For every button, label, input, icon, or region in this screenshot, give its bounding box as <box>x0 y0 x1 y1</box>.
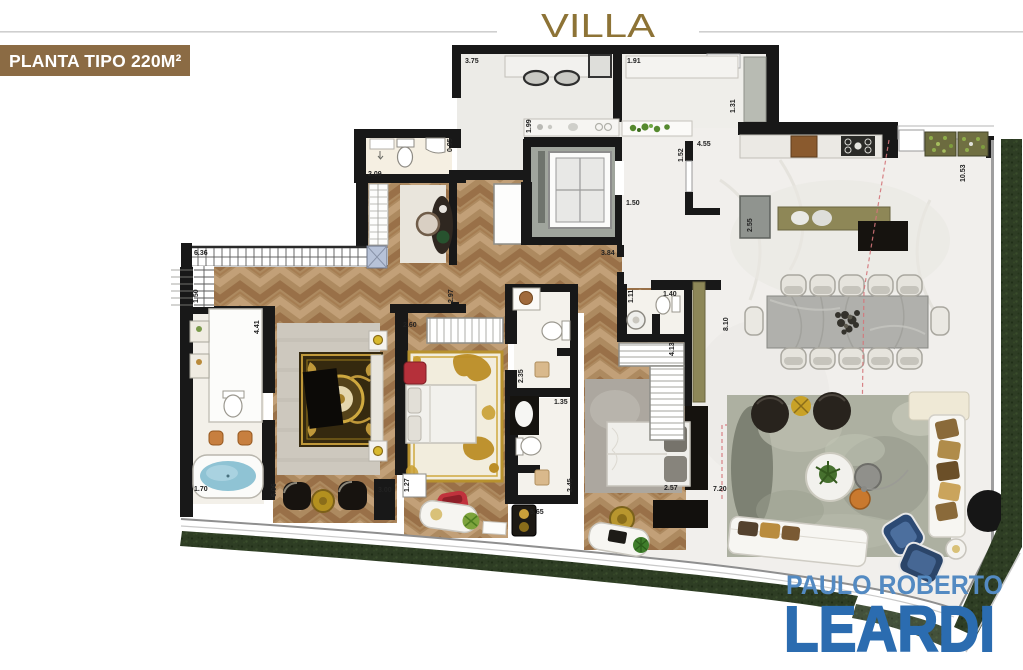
svg-text:10.53: 10.53 <box>960 164 967 182</box>
svg-text:2.57: 2.57 <box>664 485 678 492</box>
svg-text:1.35: 1.35 <box>554 399 568 406</box>
svg-text:5.65: 5.65 <box>530 509 544 516</box>
svg-text:4.41: 4.41 <box>254 320 261 334</box>
svg-text:2.45: 2.45 <box>567 478 574 492</box>
svg-text:2.55: 2.55 <box>747 218 754 232</box>
svg-text:4.13: 4.13 <box>669 342 676 356</box>
svg-text:3.00: 3.00 <box>378 487 392 494</box>
svg-text:1.40: 1.40 <box>663 291 677 298</box>
svg-text:4.55: 4.55 <box>697 141 711 148</box>
svg-text:1.91: 1.91 <box>627 58 641 65</box>
svg-text:1.52: 1.52 <box>678 148 685 162</box>
svg-text:LEARDI: LEARDI <box>784 593 995 665</box>
svg-text:1.99: 1.99 <box>526 119 533 133</box>
svg-text:1.50: 1.50 <box>193 289 200 303</box>
svg-text:3.75: 3.75 <box>465 58 479 65</box>
svg-text:6.06: 6.06 <box>271 483 278 497</box>
svg-text:6.36: 6.36 <box>194 250 208 257</box>
svg-text:8.10: 8.10 <box>723 317 730 331</box>
svg-text:VILLA: VILLA <box>541 7 655 44</box>
svg-text:1.50: 1.50 <box>626 200 640 207</box>
svg-text:2.60: 2.60 <box>403 322 417 329</box>
svg-text:2.35: 2.35 <box>518 369 525 383</box>
svg-text:1.27: 1.27 <box>404 478 411 492</box>
svg-text:1.31: 1.31 <box>730 99 737 113</box>
svg-text:1.11: 1.11 <box>628 290 635 303</box>
svg-text:1.70: 1.70 <box>194 486 208 493</box>
svg-text:2.09: 2.09 <box>368 171 382 178</box>
svg-text:2.97: 2.97 <box>448 289 455 303</box>
svg-text:3.84: 3.84 <box>601 250 615 257</box>
svg-text:7.20: 7.20 <box>713 486 727 493</box>
svg-text:PLANTA TIPO 220M²: PLANTA TIPO 220M² <box>9 51 182 71</box>
svg-text:0.95: 0.95 <box>447 138 454 152</box>
